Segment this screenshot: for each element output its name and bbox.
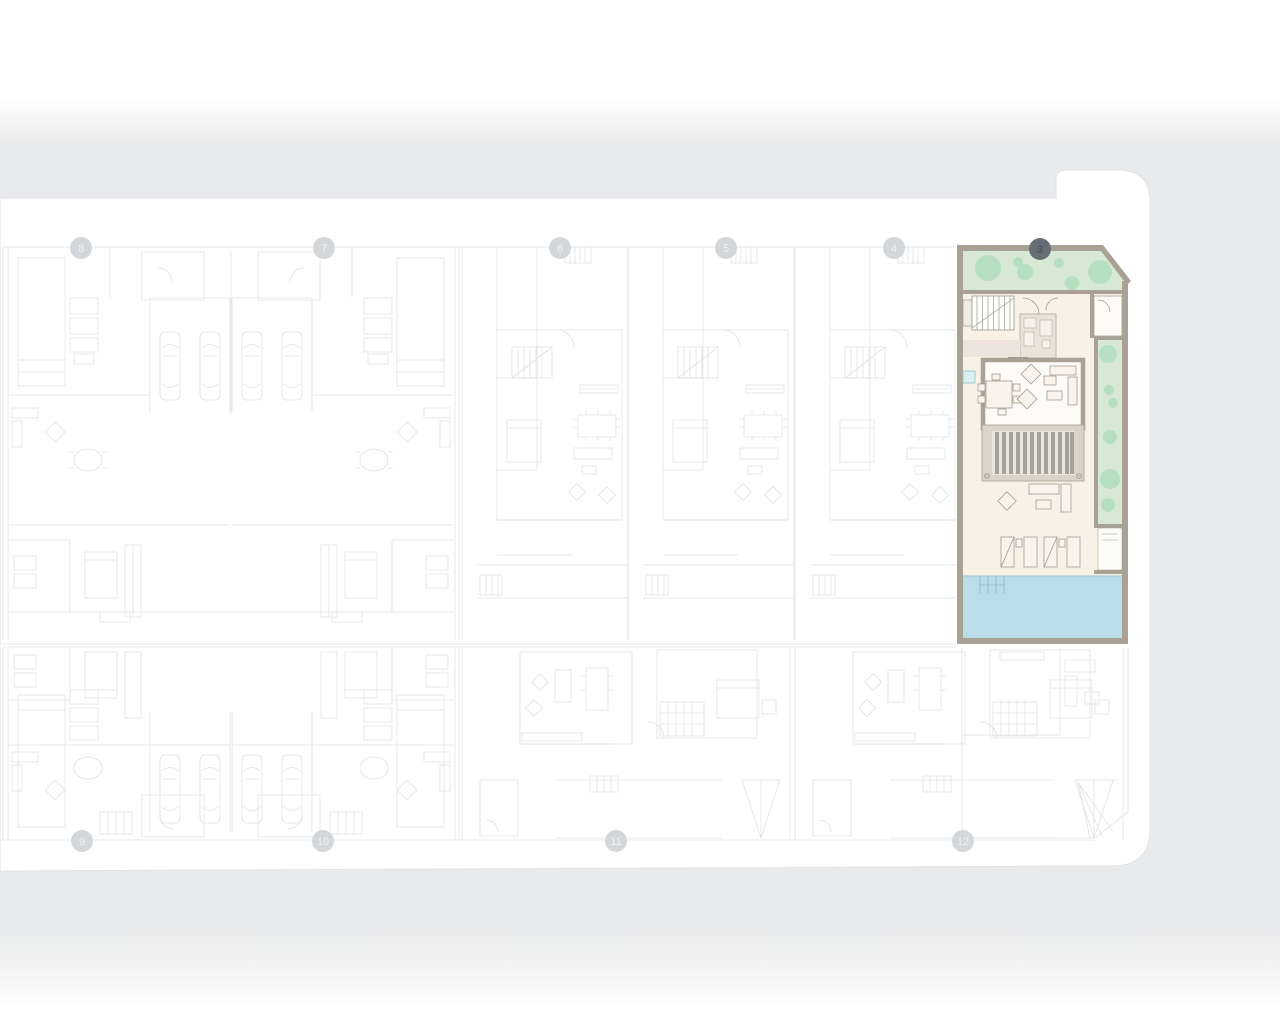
svg-text:10: 10 xyxy=(317,836,329,848)
svg-text:9: 9 xyxy=(79,836,85,848)
svg-text:6: 6 xyxy=(557,243,563,255)
svg-text:11: 11 xyxy=(610,836,621,848)
unit-badge-top-5[interactable]: 4 xyxy=(883,237,905,259)
staircase xyxy=(963,296,1014,330)
site-plan-canvas: 3 8 7 6 5 4 xyxy=(0,0,1280,1024)
unit-badge-top-2[interactable]: 7 xyxy=(313,237,335,259)
unit-badge-bottom-1[interactable]: 9 xyxy=(71,830,93,852)
svg-text:5: 5 xyxy=(723,243,729,255)
unit-badge-bottom-2[interactable]: 10 xyxy=(312,830,334,852)
svg-text:7: 7 xyxy=(321,243,327,255)
unit-3-highlighted[interactable]: 3 xyxy=(957,238,1131,644)
svg-text:12: 12 xyxy=(957,836,969,848)
kitchen-block xyxy=(1020,314,1056,358)
guest-room xyxy=(1094,296,1122,336)
unit-badge-top-3[interactable]: 6 xyxy=(549,237,571,259)
unit-badge-active[interactable]: 3 xyxy=(1029,238,1051,260)
utility-strip xyxy=(963,340,1020,357)
outdoor-shower xyxy=(963,371,975,383)
unit-badge-bottom-3[interactable]: 11 xyxy=(605,830,627,852)
pergola xyxy=(982,425,1084,481)
unit-badge-active-number: 3 xyxy=(1037,244,1043,256)
swimming-pool xyxy=(963,576,1122,638)
unit-badge-top-4[interactable]: 5 xyxy=(715,237,737,259)
site-plan-svg: 3 8 7 6 5 4 xyxy=(0,0,1280,1024)
svg-text:4: 4 xyxy=(891,243,897,255)
unit-badge-bottom-4[interactable]: 12 xyxy=(952,830,974,852)
svg-text:8: 8 xyxy=(78,243,84,255)
unit-badge-top-1[interactable]: 8 xyxy=(70,237,92,259)
